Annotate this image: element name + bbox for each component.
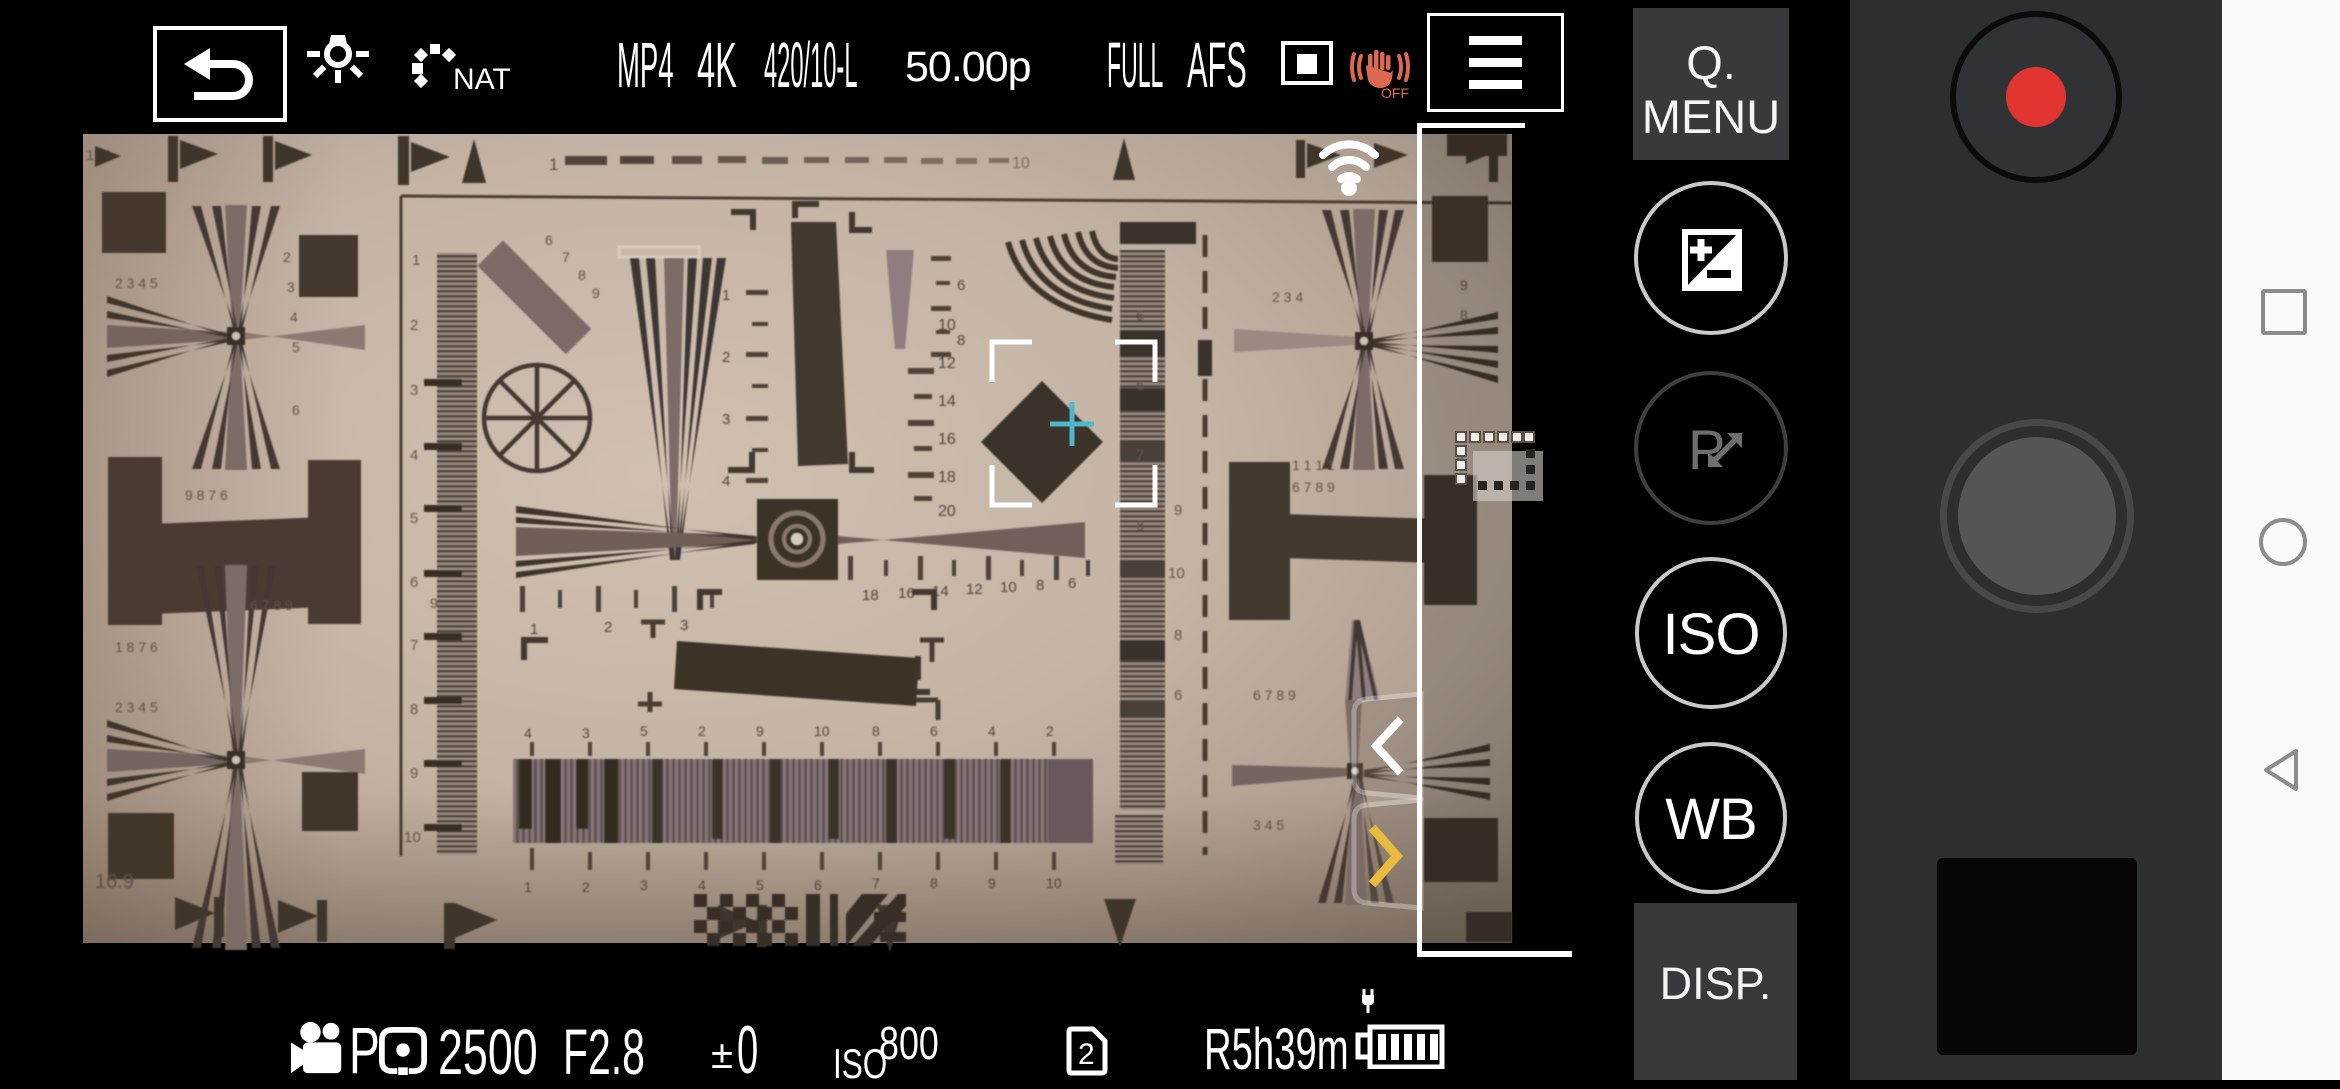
svg-text:5: 5	[640, 723, 648, 739]
svg-text:OFF: OFF	[1381, 85, 1409, 101]
svg-text:8: 8	[930, 875, 938, 891]
svg-text:1: 1	[549, 155, 558, 174]
svg-text:6: 6	[545, 232, 553, 248]
svg-text:1 1 1 1: 1 1 1 1	[1292, 457, 1335, 473]
svg-text:7: 7	[562, 249, 570, 265]
svg-text:12: 12	[966, 581, 983, 598]
svg-text:3: 3	[722, 411, 730, 428]
svg-text:16: 16	[938, 431, 956, 448]
svg-text:1: 1	[530, 621, 538, 638]
svg-text:3: 3	[410, 382, 418, 399]
svg-text:16.9: 16.9	[95, 871, 134, 893]
svg-text:4: 4	[524, 725, 532, 741]
svg-text:6 7 8 9: 6 7 8 9	[1253, 687, 1296, 703]
svg-text:6: 6	[410, 574, 418, 591]
svg-text:2: 2	[698, 723, 706, 739]
svg-text:6: 6	[1068, 575, 1076, 592]
svg-text:9: 9	[756, 723, 764, 739]
svg-text:7: 7	[872, 875, 880, 891]
svg-text:9: 9	[988, 875, 996, 891]
svg-text:12: 12	[938, 355, 956, 372]
svg-text:2 3 4 5: 2 3 4 5	[115, 275, 158, 291]
svg-text:5: 5	[1136, 307, 1144, 324]
svg-text:8: 8	[1036, 577, 1044, 594]
svg-text:6: 6	[292, 402, 300, 418]
svg-text:10: 10	[1000, 579, 1017, 596]
svg-text:4: 4	[722, 473, 730, 490]
svg-text:9: 9	[592, 285, 600, 301]
svg-text:4: 4	[988, 723, 996, 739]
svg-text:9: 9	[410, 765, 418, 782]
svg-text:10: 10	[1046, 875, 1062, 891]
svg-text:18: 18	[938, 469, 956, 486]
svg-text:6: 6	[1136, 377, 1144, 394]
svg-text:1 8 7 6: 1 8 7 6	[115, 639, 158, 655]
svg-text:4: 4	[698, 877, 706, 893]
svg-text:2 3 4: 2 3 4	[1272, 289, 1303, 305]
svg-text:3: 3	[680, 617, 688, 634]
svg-text:9: 9	[1174, 502, 1182, 519]
svg-text:6 7 8 9: 6 7 8 9	[250, 597, 293, 613]
svg-text:10: 10	[1012, 155, 1030, 172]
svg-text:3 4 5: 3 4 5	[1253, 817, 1284, 833]
svg-text:10: 10	[814, 723, 830, 739]
svg-text:8: 8	[578, 267, 586, 283]
svg-text:3: 3	[582, 725, 590, 741]
svg-text:6: 6	[930, 723, 938, 739]
svg-text:18: 18	[862, 587, 879, 604]
svg-text:3: 3	[287, 279, 295, 295]
svg-text:2: 2	[1046, 723, 1054, 739]
svg-text:6: 6	[957, 277, 965, 294]
svg-text:10: 10	[404, 829, 421, 846]
svg-text:3: 3	[640, 877, 648, 893]
svg-text:10: 10	[938, 317, 956, 334]
svg-text:2: 2	[283, 249, 291, 265]
svg-text:2: 2	[410, 317, 418, 334]
svg-text:8: 8	[957, 332, 965, 349]
svg-text:4: 4	[290, 309, 298, 325]
svg-text:6: 6	[1174, 687, 1182, 704]
svg-text:1: 1	[412, 252, 420, 269]
svg-text:7: 7	[1136, 447, 1144, 464]
svg-text:6: 6	[814, 877, 822, 893]
svg-text:10: 10	[1168, 565, 1185, 582]
svg-text:7: 7	[410, 637, 418, 654]
svg-text:9 8 7 6: 9 8 7 6	[185, 487, 228, 503]
svg-text:2: 2	[1078, 1038, 1095, 1071]
svg-text:14: 14	[938, 393, 956, 410]
svg-text:5: 5	[410, 510, 418, 527]
svg-text:1: 1	[722, 287, 730, 304]
svg-text:6 7 8 9: 6 7 8 9	[1292, 479, 1335, 495]
svg-text:2 3 4 5: 2 3 4 5	[115, 699, 158, 715]
svg-text:8: 8	[410, 701, 418, 718]
svg-text:4: 4	[410, 447, 418, 464]
svg-text:2: 2	[722, 349, 730, 366]
svg-text:8: 8	[1136, 517, 1144, 534]
svg-text:2: 2	[604, 619, 612, 636]
svg-text:1: 1	[524, 879, 532, 895]
svg-text:2: 2	[582, 879, 590, 895]
svg-text:5: 5	[292, 339, 300, 355]
svg-text:8: 8	[1174, 627, 1182, 644]
svg-text:8: 8	[872, 723, 880, 739]
svg-text:20: 20	[938, 503, 956, 520]
svg-text:5: 5	[756, 877, 764, 893]
